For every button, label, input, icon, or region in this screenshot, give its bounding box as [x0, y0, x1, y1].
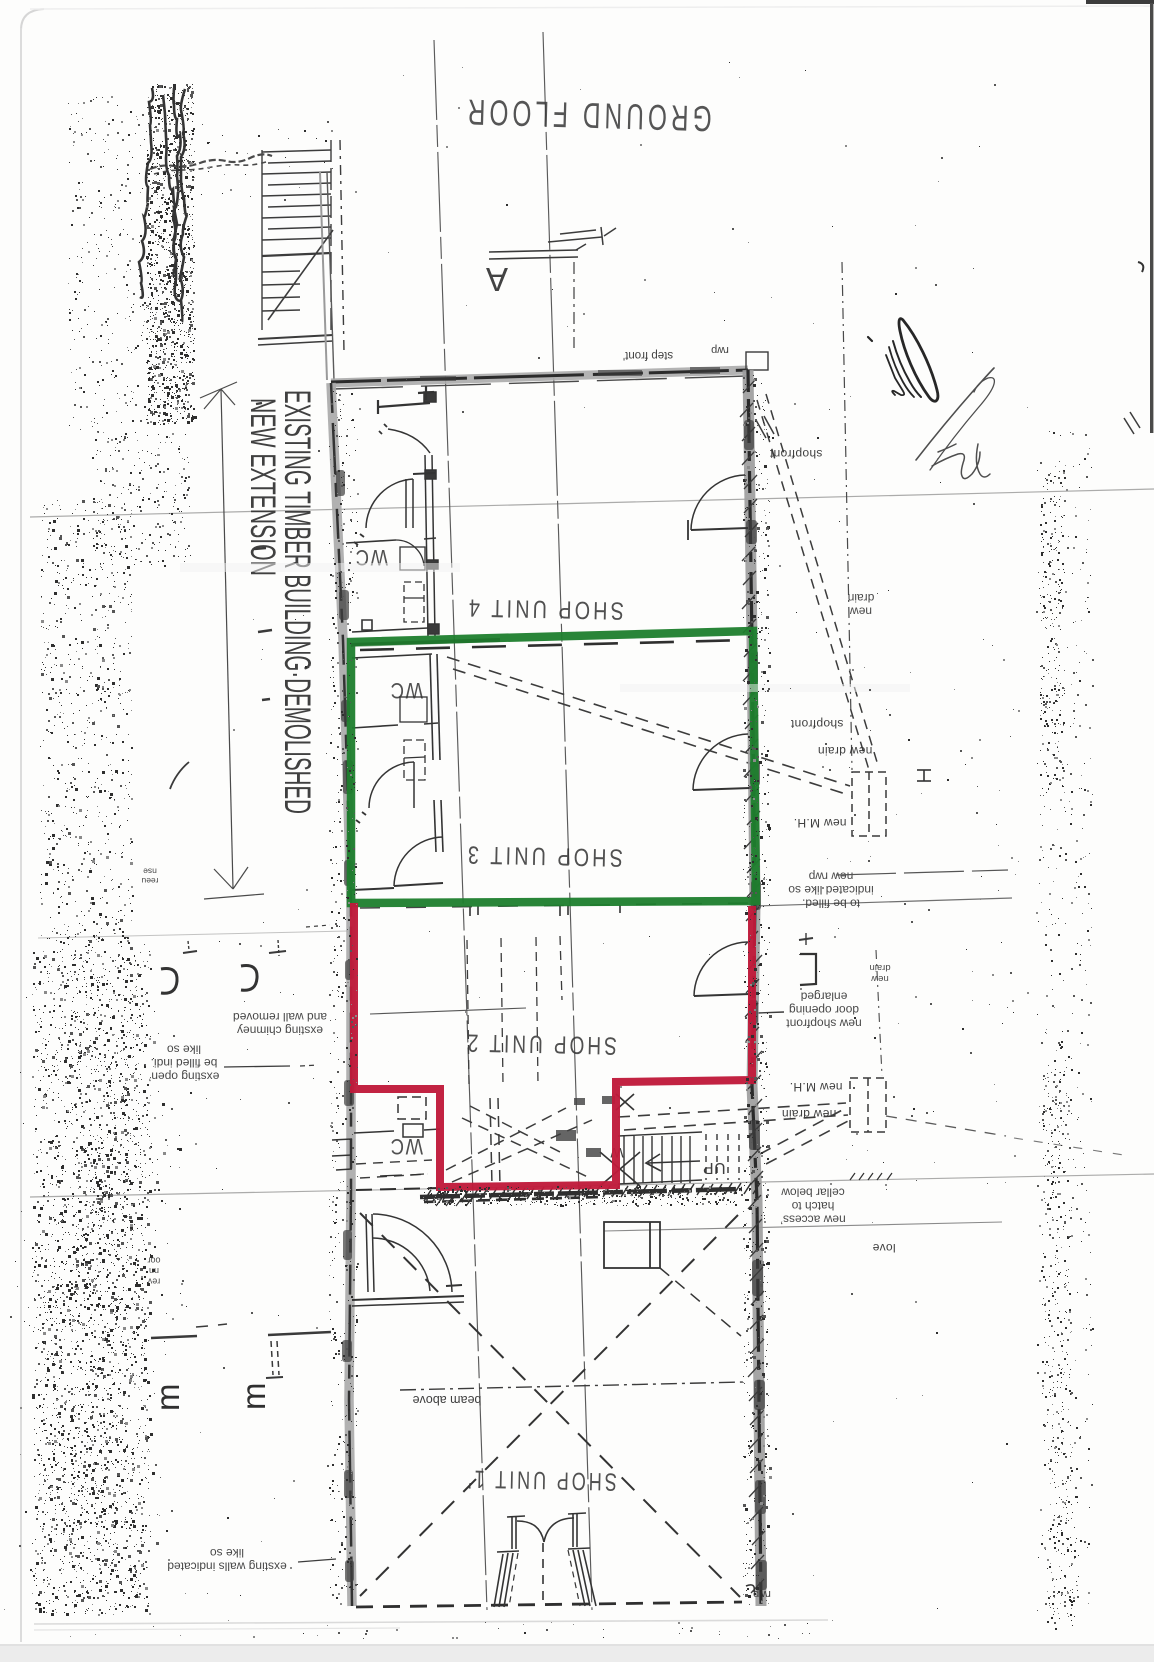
svg-text:shopfront: shopfront	[769, 447, 822, 461]
svg-text:WC: WC	[389, 678, 423, 703]
svg-text:new: new	[850, 605, 872, 619]
svg-text:cellar below: cellar below	[781, 1185, 845, 1199]
svg-text:SHOP UNIT 1ʼ: SHOP UNIT 1ʼ	[465, 1464, 618, 1495]
svg-text:nse: nse	[143, 866, 157, 876]
svg-text:indicated like so: indicated like so	[788, 883, 874, 897]
svg-text:drain: drain	[848, 591, 875, 605]
svg-text:SHOP UNIT 3: SHOP UNIT 3	[465, 840, 624, 871]
svg-text:beam above: beam above	[413, 1393, 482, 1407]
svg-text:new M.H.: new M.H.	[789, 1080, 842, 1094]
svg-text:reeu: reeu	[141, 876, 158, 886]
svg-text:EXISTING TIMBER BUILDING·DEM: EXISTING TIMBER BUILDING·DEMOLISHED	[277, 390, 318, 814]
svg-text:like so: like so	[210, 1546, 244, 1560]
svg-text:GROUND FLOOR: GROUND FLOOR	[463, 92, 712, 140]
svg-text:SHOP UNIT 2: SHOP UNIT 2	[465, 1028, 618, 1059]
svg-text:door opening: door opening	[789, 1003, 859, 1017]
svg-text:m: m	[235, 1383, 272, 1411]
svg-text:new shopfront: new shopfront	[786, 1016, 862, 1030]
svg-text:exsting walls indicated: exsting walls indicated	[167, 1560, 286, 1574]
svg-text:SHOP UNIT 4: SHOP UNIT 4	[466, 593, 625, 624]
svg-text:enlarged: enlarged	[801, 989, 848, 1003]
svg-text:WC: WC	[389, 1134, 423, 1159]
svg-text:step front': step front'	[623, 349, 673, 361]
svg-text:rwp: rwp	[711, 344, 729, 356]
svg-text:new drain: new drain	[818, 744, 873, 758]
svg-text:UP: UP	[702, 1159, 725, 1176]
svg-text:new M.H.: new M.H.	[793, 816, 846, 830]
svg-text:exsting openʼ: exsting openʼ	[149, 1069, 220, 1083]
svg-text:and wall removed: and wall removed	[233, 1010, 327, 1024]
svg-text:new: new	[871, 973, 889, 984]
svg-text:be filled indi.: be filled indi.	[151, 1056, 218, 1070]
svg-text:new accessʼ: new accessʼ	[780, 1212, 845, 1226]
svg-text:hatch to: hatch to	[791, 1199, 834, 1213]
svg-text:oor: oor	[147, 1255, 160, 1265]
svg-text:to be filled.: to be filled.	[802, 896, 860, 910]
svg-text:love: love	[872, 1241, 895, 1255]
svg-text:like so: like so	[167, 1042, 201, 1056]
svg-text:exsting chimney: exsting chimney	[237, 1024, 323, 1038]
svg-text:m: m	[149, 1384, 186, 1412]
svg-text:new rwp: new rwp	[808, 869, 853, 883]
svg-text:drain: drain	[869, 962, 890, 973]
svg-text:A: A	[486, 261, 508, 298]
svg-text:shopfront: shopfront	[790, 717, 843, 731]
